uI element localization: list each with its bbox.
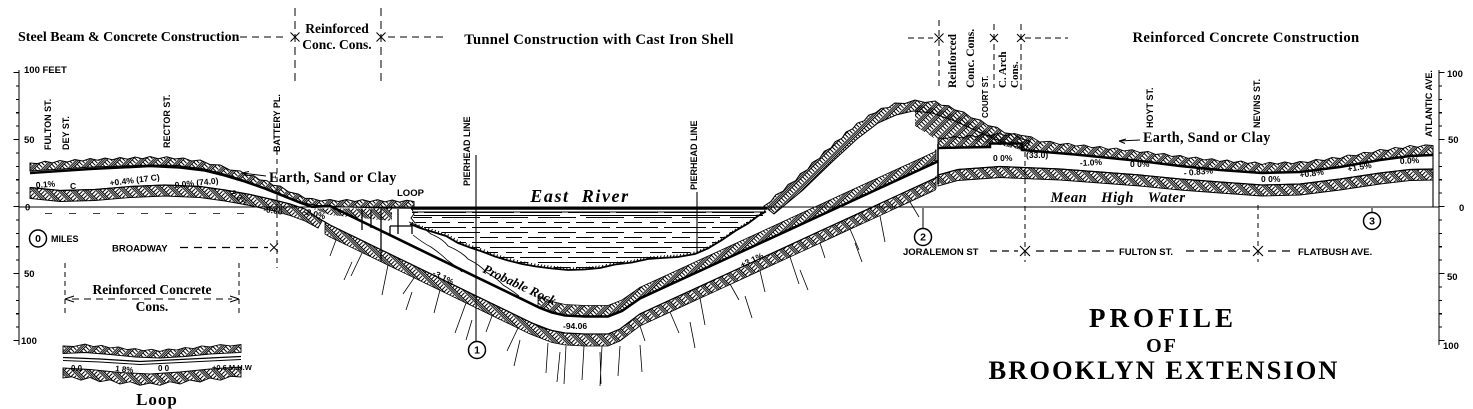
svg-text:-94.06: -94.06	[563, 321, 587, 331]
svg-text:PROFILE: PROFILE	[1089, 303, 1237, 333]
svg-text:100: 100	[1443, 341, 1459, 352]
svg-text:Earth, Sand or Clay: Earth, Sand or Clay	[269, 170, 397, 186]
svg-text:BROOKLYN EXTENSION: BROOKLYN EXTENSION	[989, 355, 1340, 385]
svg-text:50: 50	[1448, 135, 1459, 146]
svg-text:LOOP: LOOP	[397, 188, 425, 199]
svg-text:100: 100	[21, 336, 37, 347]
svg-text:RECTOR ST.: RECTOR ST.	[162, 95, 172, 148]
svg-text:Reinforced: Reinforced	[305, 21, 369, 36]
svg-text:Reinforced Concrete Constructi: Reinforced Concrete Construction	[1132, 30, 1359, 46]
svg-text:0.0: 0.0	[71, 364, 83, 373]
svg-text:MILES: MILES	[51, 234, 79, 244]
svg-text:0 0%: 0 0%	[1130, 159, 1150, 169]
svg-text:C. Arch: C. Arch	[997, 52, 1009, 88]
svg-text:2: 2	[920, 232, 926, 244]
svg-text:COURT ST.: COURT ST.	[981, 76, 990, 118]
svg-text:PIERHEAD LINE: PIERHEAD LINE	[689, 120, 699, 190]
svg-text:Mean High Water: Mean High Water	[1050, 190, 1186, 206]
svg-text:1: 1	[474, 345, 480, 357]
svg-text:1 8%: 1 8%	[115, 364, 134, 375]
svg-text:OF: OF	[1146, 335, 1178, 357]
svg-text:100 FEET: 100 FEET	[24, 65, 67, 76]
svg-text:FLATBUSH AVE.: FLATBUSH AVE.	[1298, 247, 1372, 258]
svg-text:0 0%: 0 0%	[1261, 174, 1281, 184]
svg-text:East River: East River	[529, 186, 630, 206]
svg-text:Reinforced Concrete: Reinforced Concrete	[92, 282, 211, 297]
svg-text:50: 50	[1447, 272, 1458, 283]
svg-text:DEY ST.: DEY ST.	[61, 116, 71, 150]
svg-text:0.1%: 0.1%	[35, 179, 55, 190]
svg-text:0: 0	[1459, 203, 1464, 214]
svg-text:Steel Beam & Concrete Construc: Steel Beam & Concrete Construction	[18, 30, 240, 45]
svg-text:100: 100	[1447, 69, 1463, 80]
svg-text:Reinforced: Reinforced	[947, 33, 959, 88]
svg-text:0 0: 0 0	[158, 364, 170, 373]
svg-text:Cons.: Cons.	[1009, 61, 1021, 88]
svg-text:Conc. Cons.: Conc. Cons.	[302, 37, 371, 52]
svg-text:Earth, Sand or Clay: Earth, Sand or Clay	[1143, 130, 1271, 146]
svg-text:+0.6 M.H.W: +0.6 M.H.W	[212, 363, 253, 372]
svg-text:HOYT ST.: HOYT ST.	[1145, 87, 1155, 128]
svg-text:FULTON ST.: FULTON ST.	[43, 99, 53, 150]
svg-text:BROADWAY: BROADWAY	[112, 244, 168, 255]
svg-text:Cons.: Cons.	[136, 299, 169, 314]
svg-text:0 0%: 0 0%	[993, 153, 1013, 163]
svg-text:-1.0%: -1.0%	[1080, 157, 1103, 168]
svg-text:Conc. Cons.: Conc. Cons.	[965, 29, 977, 88]
svg-text:50: 50	[24, 135, 35, 146]
svg-text:0: 0	[35, 233, 41, 245]
svg-text:BATTERY PL.: BATTERY PL.	[272, 94, 282, 152]
svg-text:Tunnel Construction with Cast: Tunnel Construction with Cast Iron Shell	[464, 32, 733, 48]
svg-text:0: 0	[25, 203, 30, 214]
svg-text:50: 50	[24, 269, 35, 280]
svg-text:3: 3	[1369, 216, 1375, 228]
svg-text:Loop: Loop	[136, 390, 178, 409]
svg-text:JORALEMON ST: JORALEMON ST	[903, 247, 979, 258]
svg-text:PIERHEAD LINE: PIERHEAD LINE	[462, 116, 472, 186]
svg-text:FULTON ST.: FULTON ST.	[1119, 247, 1173, 258]
svg-text:NEVINS ST.: NEVINS ST.	[1252, 79, 1262, 128]
svg-text:(33.0): (33.0)	[1026, 150, 1048, 160]
svg-text:0.0%: 0.0%	[1400, 155, 1420, 166]
svg-text:C: C	[70, 181, 76, 191]
svg-text:ATLANTIC AVE.: ATLANTIC AVE.	[1424, 70, 1434, 137]
